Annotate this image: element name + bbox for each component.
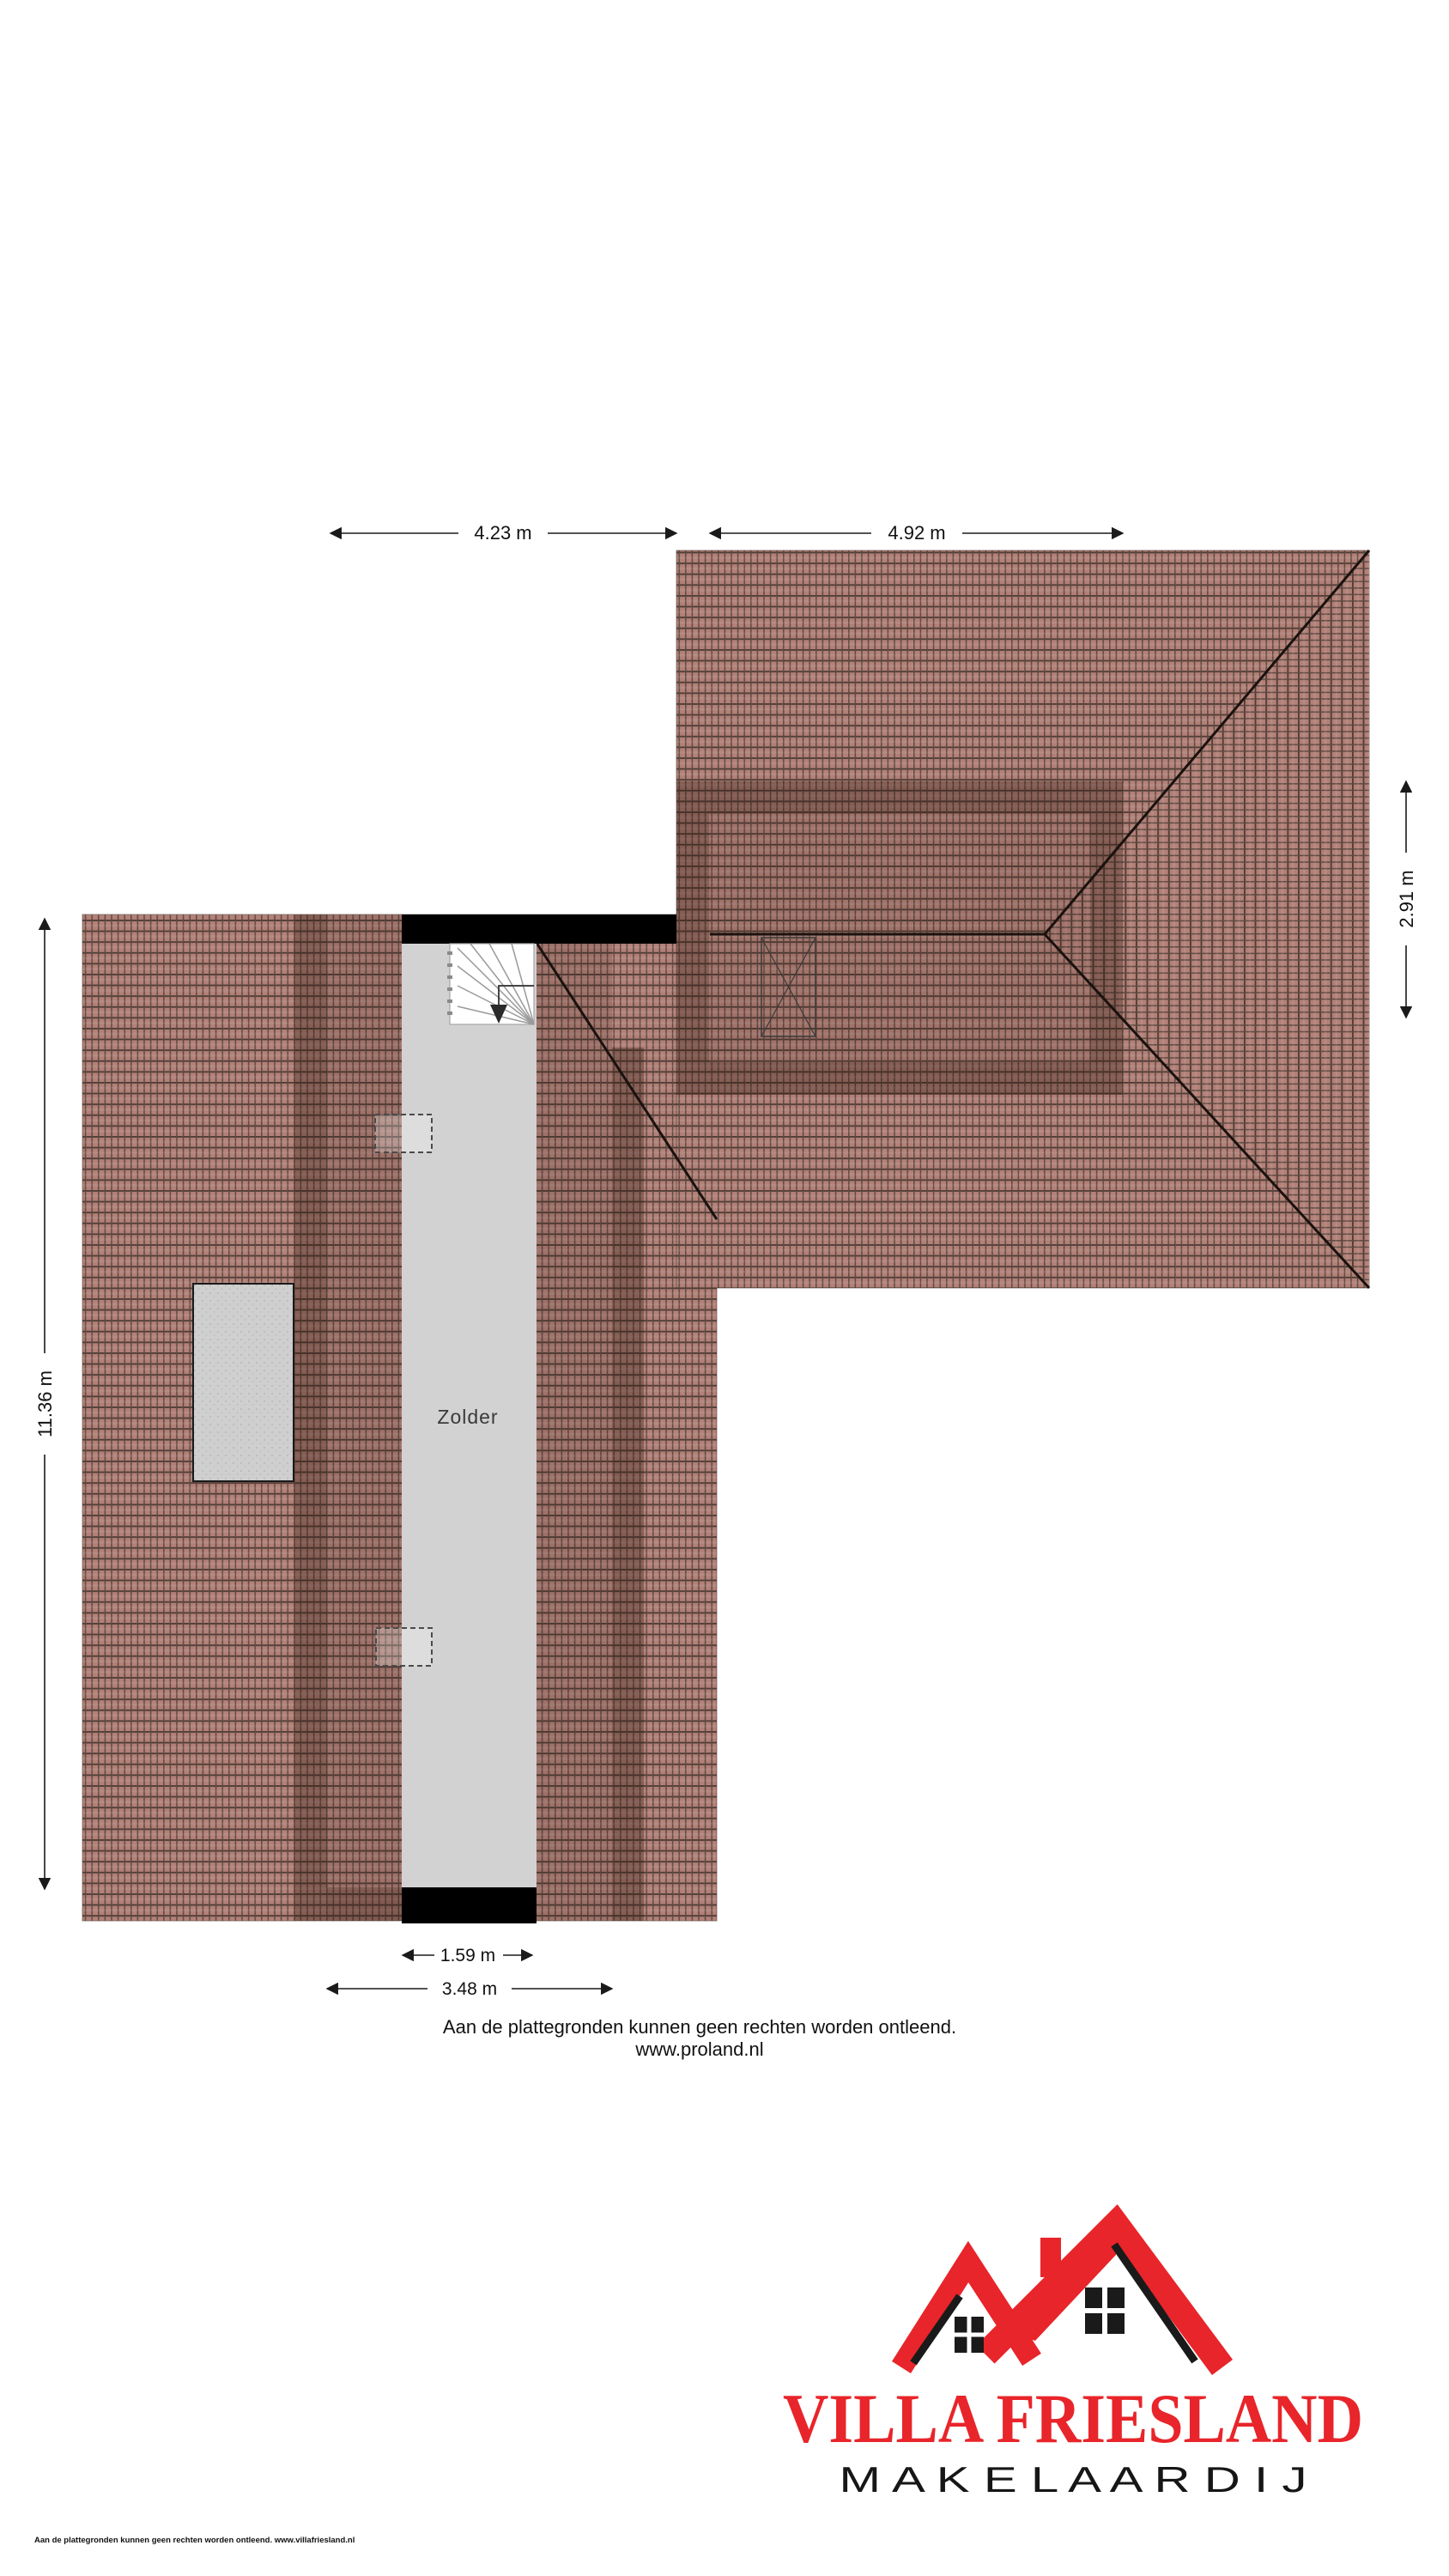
floorplan-canvas: Zolder 4.23 m 4.92 m 2.91 m 11.36 m bbox=[0, 0, 1449, 2576]
wall-bottom bbox=[402, 1887, 537, 1923]
fine-print-text: Aan de plattegronden kunnen geen rechten… bbox=[34, 2536, 355, 2545]
dimension-left-side: 11.36 m bbox=[33, 919, 57, 1889]
logo-window-large-icon bbox=[1085, 2287, 1125, 2334]
dimension-bottom-section: 3.48 m bbox=[327, 1977, 612, 1999]
dimension-label: 4.92 m bbox=[888, 522, 945, 544]
left-wing-shade-band-east bbox=[612, 1048, 644, 1921]
dimension-top-right: 4.92 m bbox=[710, 520, 1123, 544]
dimension-label: 2.91 m bbox=[1396, 870, 1417, 927]
staircase bbox=[447, 944, 534, 1024]
disclaimer-text: Aan de plattegronden kunnen geen rechten… bbox=[443, 2016, 956, 2038]
logo-roofs-icon bbox=[901, 2224, 1222, 2367]
dimension-bottom-room: 1.59 m bbox=[403, 1943, 532, 1965]
logo-window-small-icon bbox=[955, 2317, 984, 2353]
room-label: Zolder bbox=[437, 1406, 498, 1428]
logo-title: VILLA FRIESLAND bbox=[783, 2379, 1363, 2458]
dimension-top-left: 4.23 m bbox=[330, 520, 676, 544]
dashed-opening-upper bbox=[375, 1115, 432, 1152]
footer: Aan de plattegronden kunnen geen rechten… bbox=[443, 2016, 956, 2060]
website-text: www.proland.nl bbox=[634, 2038, 763, 2060]
left-wing-shade-mid-east bbox=[537, 944, 612, 1921]
logo-subtitle: M A K E L A A R D I J bbox=[840, 2459, 1307, 2500]
dormer-panel bbox=[193, 1284, 294, 1481]
floor-plan: Zolder bbox=[82, 550, 1369, 1923]
left-wing-shade-band-west bbox=[294, 914, 327, 1921]
dimension-label: 11.36 m bbox=[34, 1370, 56, 1437]
floorplan-page: Zolder 4.23 m 4.92 m 2.91 m 11.36 m bbox=[0, 0, 1449, 2576]
dimension-label: 1.59 m bbox=[440, 1946, 495, 1965]
dimension-right-side: 2.91 m bbox=[1394, 781, 1418, 1018]
brand-logo: VILLA FRIESLAND M A K E L A A R D I J bbox=[783, 2224, 1363, 2500]
dimension-label: 4.23 m bbox=[474, 522, 531, 544]
bottom-wall-shadow bbox=[327, 1887, 402, 1921]
left-wing-shade-mid-west bbox=[327, 914, 402, 1921]
wall-top bbox=[402, 914, 676, 944]
dimension-label: 3.48 m bbox=[442, 1979, 497, 1999]
dashed-opening-lower bbox=[376, 1628, 432, 1666]
